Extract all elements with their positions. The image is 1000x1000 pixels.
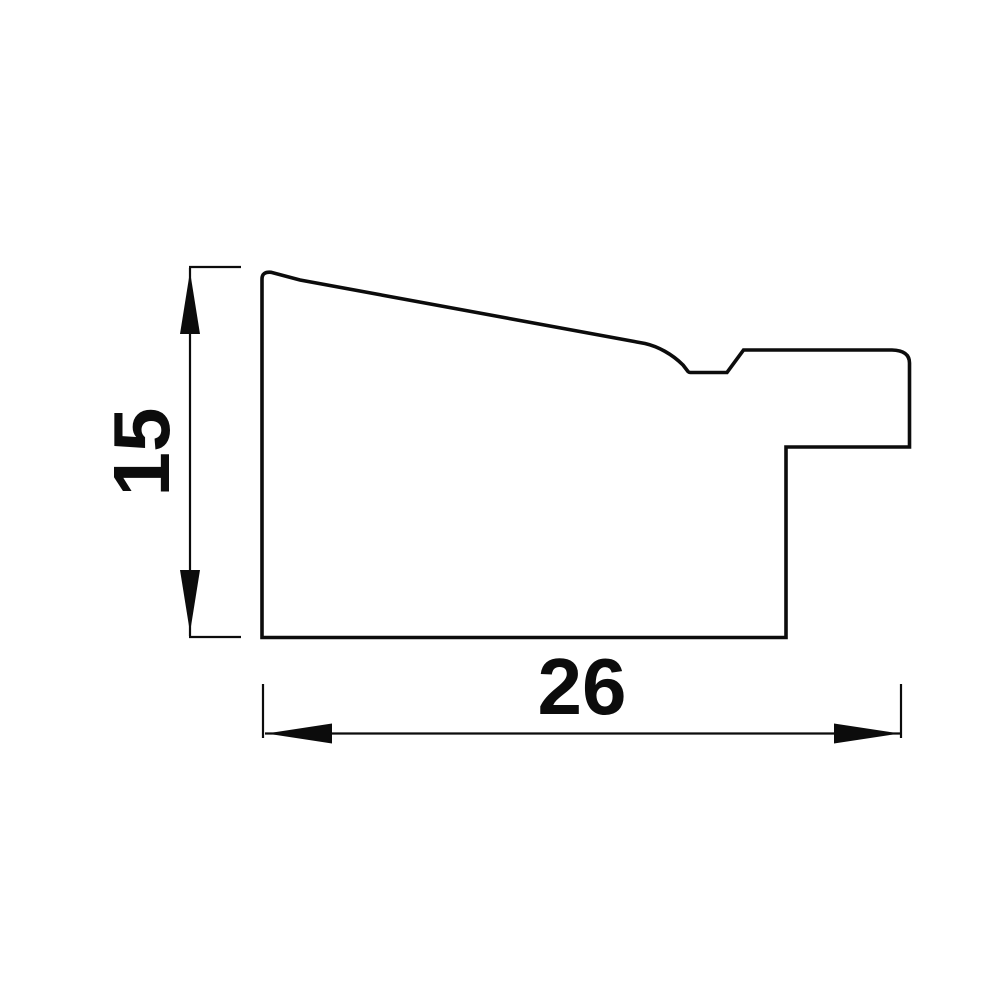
svg-text:15: 15 [97,408,186,497]
svg-text:26: 26 [538,642,627,731]
